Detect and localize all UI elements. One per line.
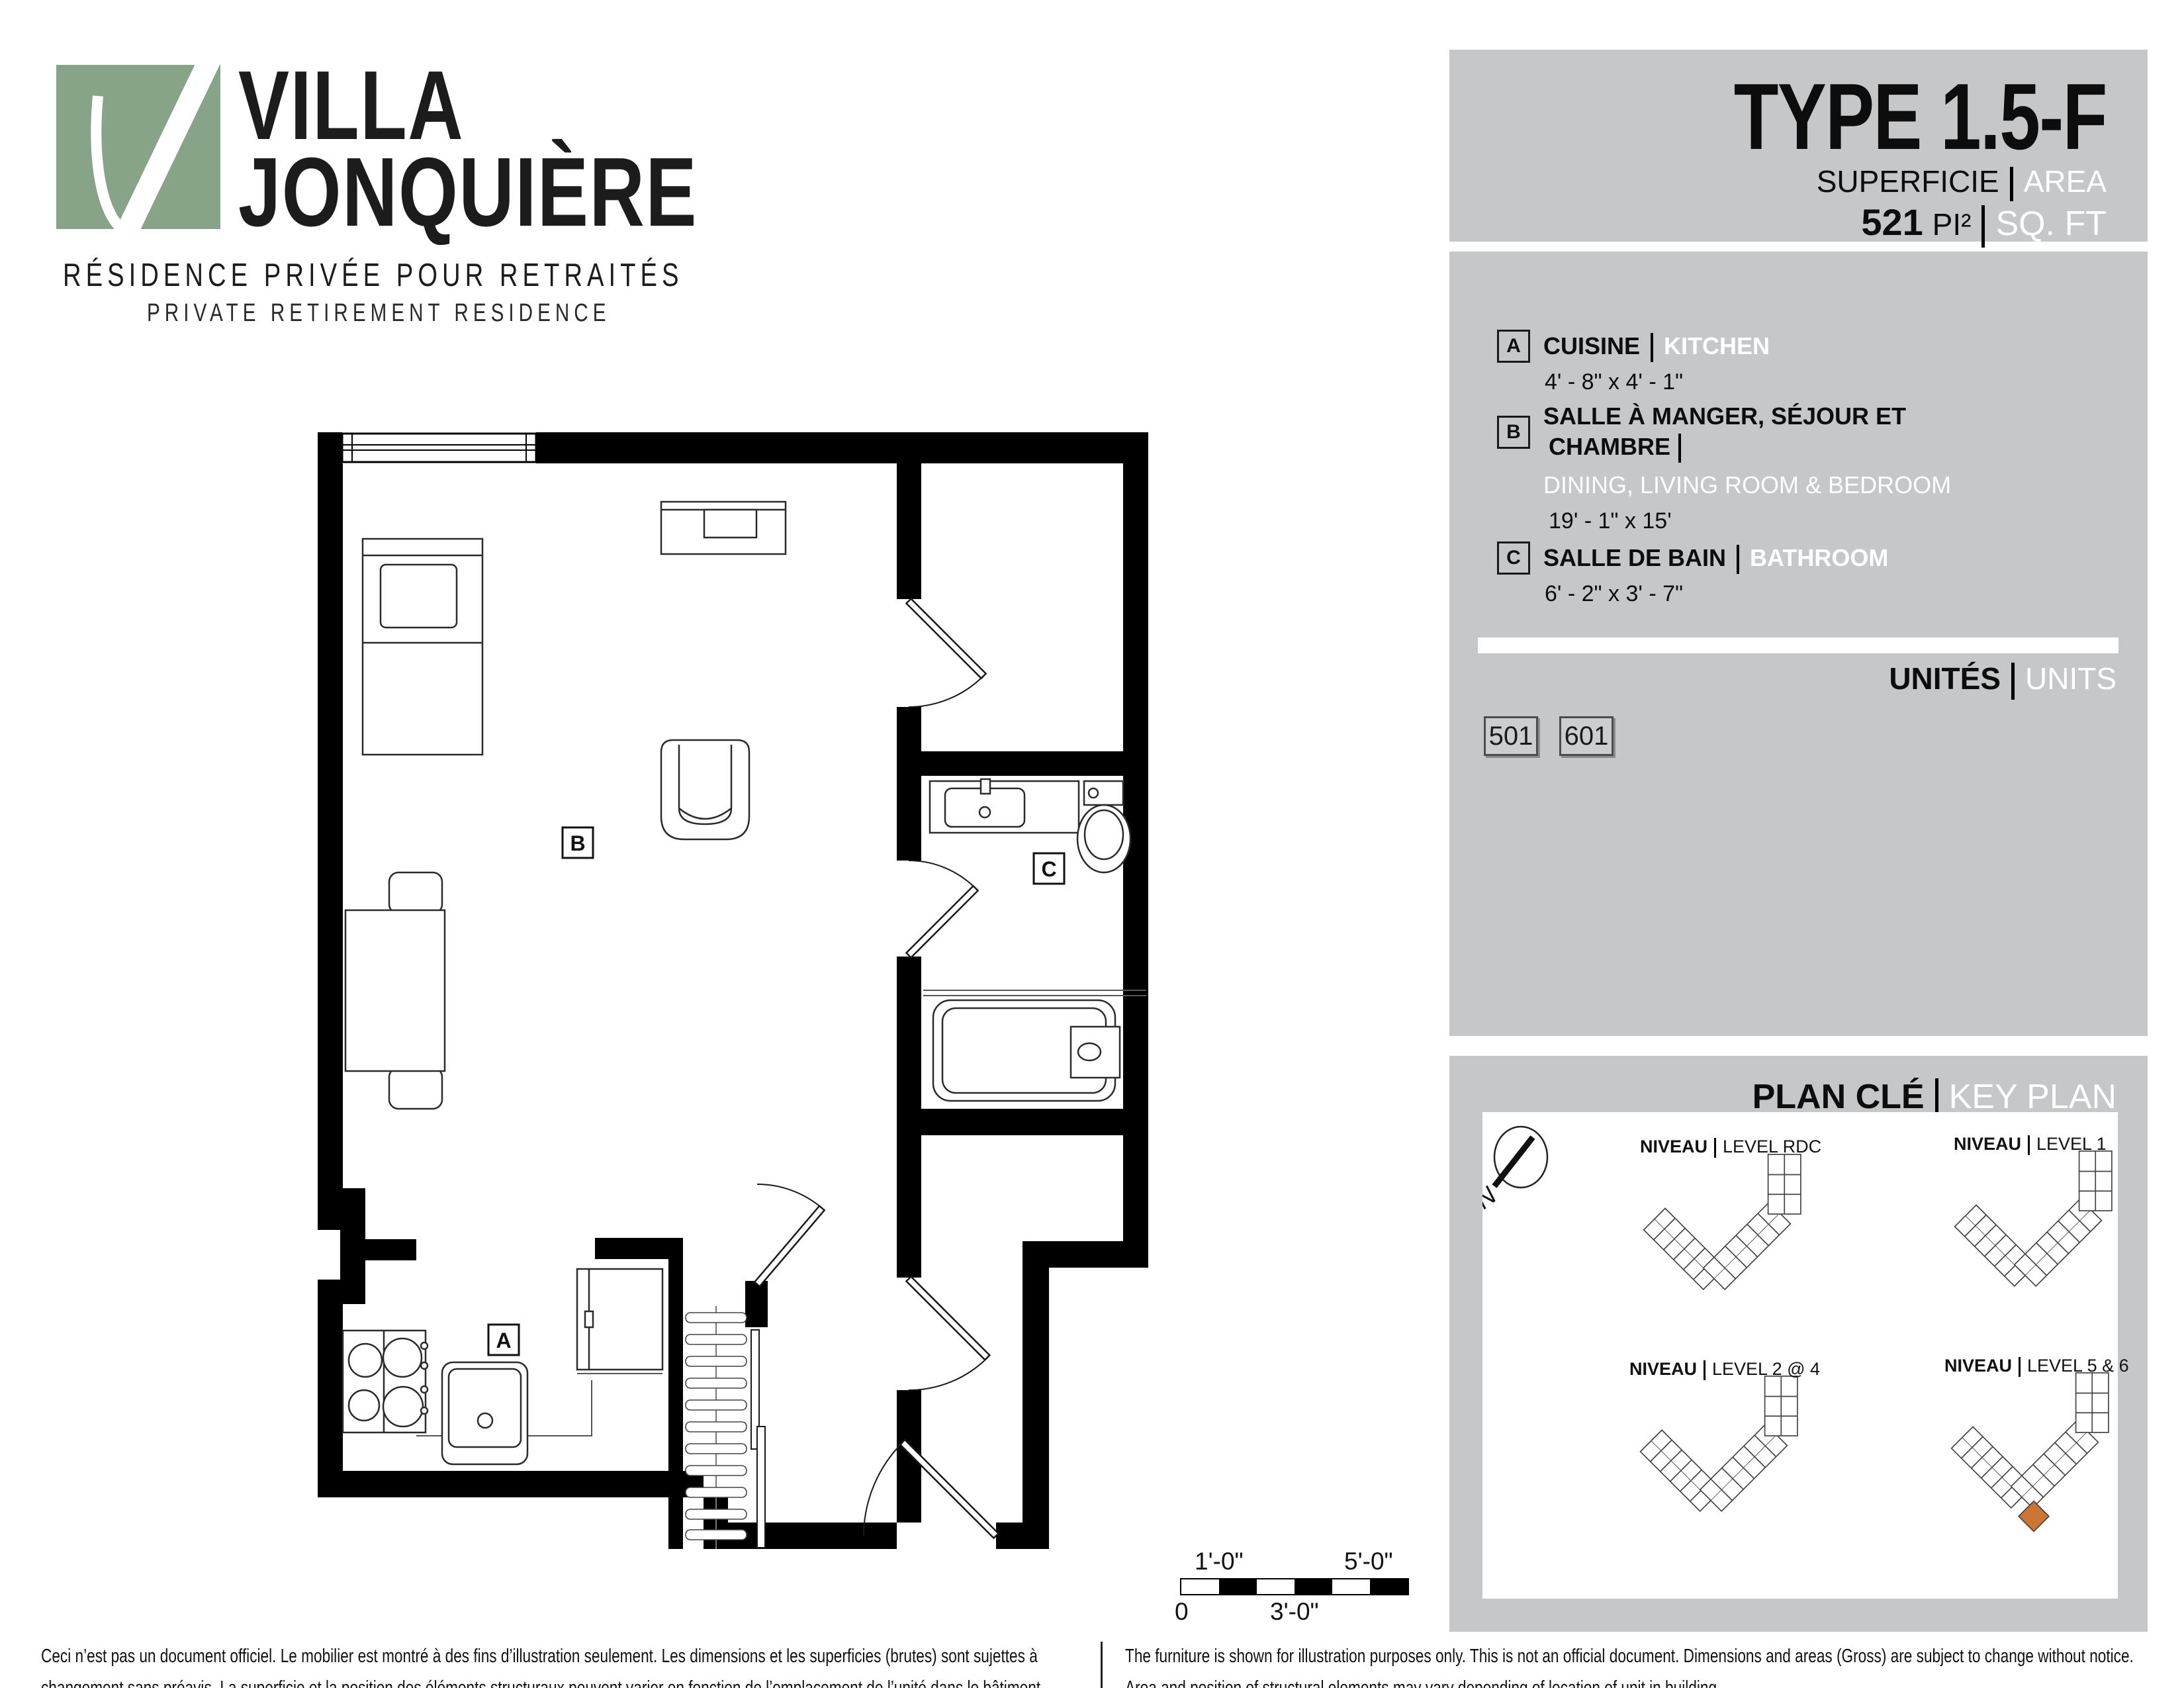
legend-key-b: B <box>1506 421 1521 444</box>
scale-label-0: 0 <box>1175 1598 1189 1626</box>
north-arrow-label: N <box>1482 1182 1502 1215</box>
door-corridor-top <box>906 598 985 707</box>
footer-en-line1: The furniture is shown for illustration … <box>1125 1640 2134 1672</box>
logo-wordmark: VILLA JONQUIÈRE <box>238 63 827 236</box>
north-arrow: N <box>1482 1127 1547 1215</box>
footer-en-line2: Area and position of structural elements… <box>1125 1672 1721 1688</box>
unit-number-box-601: 601 <box>1559 716 1614 756</box>
armchair <box>661 740 749 839</box>
footer-fr-line1: Ceci n’est pas un document officiel. Le … <box>41 1640 1038 1672</box>
key-plan-level-2-4 <box>1641 1376 1797 1511</box>
key-plan-level-1 <box>1955 1151 2112 1286</box>
scale-bar: 1'-0" 5'-0" 0 3'-0" <box>1180 1548 1418 1620</box>
legend-key-box-c: C <box>1497 541 1530 575</box>
legend-a-fr: CUISINE <box>1543 332 1640 359</box>
window <box>342 432 536 463</box>
legend-c-fr: SALLE DE BAIN <box>1543 544 1726 571</box>
door-closet-vestibule <box>754 1184 824 1286</box>
key-plan-level-5-6 <box>1952 1373 2109 1532</box>
room-label-living: B <box>570 831 585 855</box>
legend-c-en: BATHROOM <box>1750 544 1888 571</box>
dining-set <box>345 872 445 1109</box>
legend-b-dims: 19' - 1" x 15' <box>1549 508 1672 534</box>
logo-name-line1: VILLA <box>238 63 464 149</box>
kitchen-sink <box>442 1362 527 1464</box>
area-unit-fr: PI² <box>1933 207 1972 242</box>
key-plan-label-l56: NIVEAULEVEL 5 & 6 <box>1944 1356 2129 1377</box>
unit-number-box-501: 501 <box>1484 716 1538 756</box>
key-plan-label-l1: NIVEAULEVEL 1 <box>1954 1134 2107 1155</box>
legend-key-a: A <box>1506 335 1521 357</box>
footer-disclaimer-fr: Ceci n’est pas un document officiel. Le … <box>41 1640 1093 1688</box>
toilet <box>1077 781 1130 872</box>
door-bathroom <box>906 861 978 958</box>
title-panel: TYPE 1.5-F SUPERFICIEAREA 521 PI²SQ. FT <box>1449 50 2148 242</box>
legend-a-en: KITCHEN <box>1664 332 1770 359</box>
footer-divider <box>1101 1642 1103 1688</box>
footer-disclaimer-en: The furniture is shown for illustration … <box>1125 1640 2177 1688</box>
area-label-en: AREA <box>2024 164 2107 199</box>
units-label-fr: UNITÉS <box>1889 661 2001 696</box>
area-unit-en: SQ. FT <box>1995 205 2107 243</box>
scale-label-1ft: 1'-0" <box>1195 1548 1244 1575</box>
key-plan-label-l24: NIVEAULEVEL 2 @ 4 <box>1629 1359 1820 1380</box>
room-label-bathroom: C <box>1041 857 1056 881</box>
unit-type-title: TYPE 1.5-F <box>1734 63 2107 171</box>
scale-label-3ft: 3'-0" <box>1270 1598 1319 1626</box>
unit-number-601: 601 <box>1565 722 1609 751</box>
furniture <box>345 502 786 1109</box>
tv <box>704 510 756 538</box>
area-value: 521 <box>1861 201 1923 243</box>
units-label-en: UNITS <box>2025 661 2116 696</box>
room-label-kitchen: A <box>496 1329 511 1352</box>
unit-floor-plan: A B C <box>318 432 1148 1589</box>
logo-tagline-en: PRIVATE RETIREMENT RESIDENCE <box>147 299 611 328</box>
legend-divider-bar <box>1478 637 2118 653</box>
floorplan-sheet: VILLA JONQUIÈRE RÉSIDENCE PRIVÉE POUR RE… <box>0 0 2184 1688</box>
area-value-row: 521 PI²SQ. FT <box>1861 201 2107 248</box>
legend-key-c: C <box>1506 547 1521 569</box>
legend-key-box-a: A <box>1497 330 1530 363</box>
bed <box>363 539 482 755</box>
kitchen-fixtures <box>343 1269 662 1464</box>
legend-b-fr-line2: CHAMBRE <box>1549 433 1681 463</box>
area-label-row: SUPERFICIEAREA <box>1817 164 2107 201</box>
legend-b-fr-line1: SALLE À MANGER, SÉJOUR ET <box>1543 402 1906 430</box>
bathroom-sink-counter <box>930 779 1079 833</box>
legend-panel: A CUISINEKITCHEN 4' - 8" x 4' - 1" B SAL… <box>1449 252 2148 1036</box>
logo-name-line2: JONQUIÈRE <box>238 149 698 236</box>
dining-chair-bottom <box>389 1068 442 1109</box>
legend-a-dims: 4' - 8" x 4' - 1" <box>1545 369 1683 395</box>
tv-console <box>661 502 786 554</box>
legend-b-fr-line2-text: CHAMBRE <box>1549 433 1670 460</box>
scale-bar-strip <box>1180 1578 1409 1595</box>
fridge <box>577 1269 662 1370</box>
footer-fr-line2: changement sans préavis. La superficie e… <box>41 1672 1044 1688</box>
logo-tagline-fr: RÉSIDENCE PRIVÉE POUR RETRAITÉS <box>63 257 684 294</box>
unit-number-501: 501 <box>1489 722 1533 751</box>
bathtub <box>923 990 1146 1101</box>
key-plan-level-rdc <box>1644 1154 1801 1289</box>
closet-sliding-door-2 <box>757 1427 765 1548</box>
dining-table <box>345 910 445 1071</box>
scale-label-5ft: 5'-0" <box>1344 1548 1393 1575</box>
door-corridor-bottom <box>906 1276 989 1390</box>
key-plan-panel: PLAN CLÉKEY PLAN <box>1449 1056 2148 1632</box>
legend-b-en: DINING, LIVING ROOM & BEDROOM <box>1543 471 1951 499</box>
key-plan-label-fr: PLAN CLÉ <box>1752 1078 1925 1116</box>
dining-chair-top <box>389 872 442 914</box>
pillow <box>381 565 457 628</box>
stove <box>343 1331 428 1432</box>
villa-jonquiere-logo-mark <box>53 60 238 238</box>
highlighted-unit <box>2019 1501 2049 1532</box>
area-label-fr: SUPERFICIE <box>1817 164 1999 199</box>
key-plan-label-rdc: NIVEAULEVEL RDC <box>1640 1137 1821 1158</box>
closet <box>686 1306 765 1549</box>
key-plan-label-en: KEY PLAN <box>1949 1078 2116 1116</box>
units-label-row: UNITÉSUNITS <box>1889 661 2116 700</box>
legend-row-a-names: CUISINEKITCHEN <box>1543 332 1770 362</box>
legend-key-box-b: B <box>1497 416 1530 449</box>
legend-c-dims: 6' - 2" x 3' - 7" <box>1545 581 1683 607</box>
legend-row-c-names: SALLE DE BAINBATHROOM <box>1543 544 1888 574</box>
bathroom-fixtures <box>923 779 1146 1101</box>
